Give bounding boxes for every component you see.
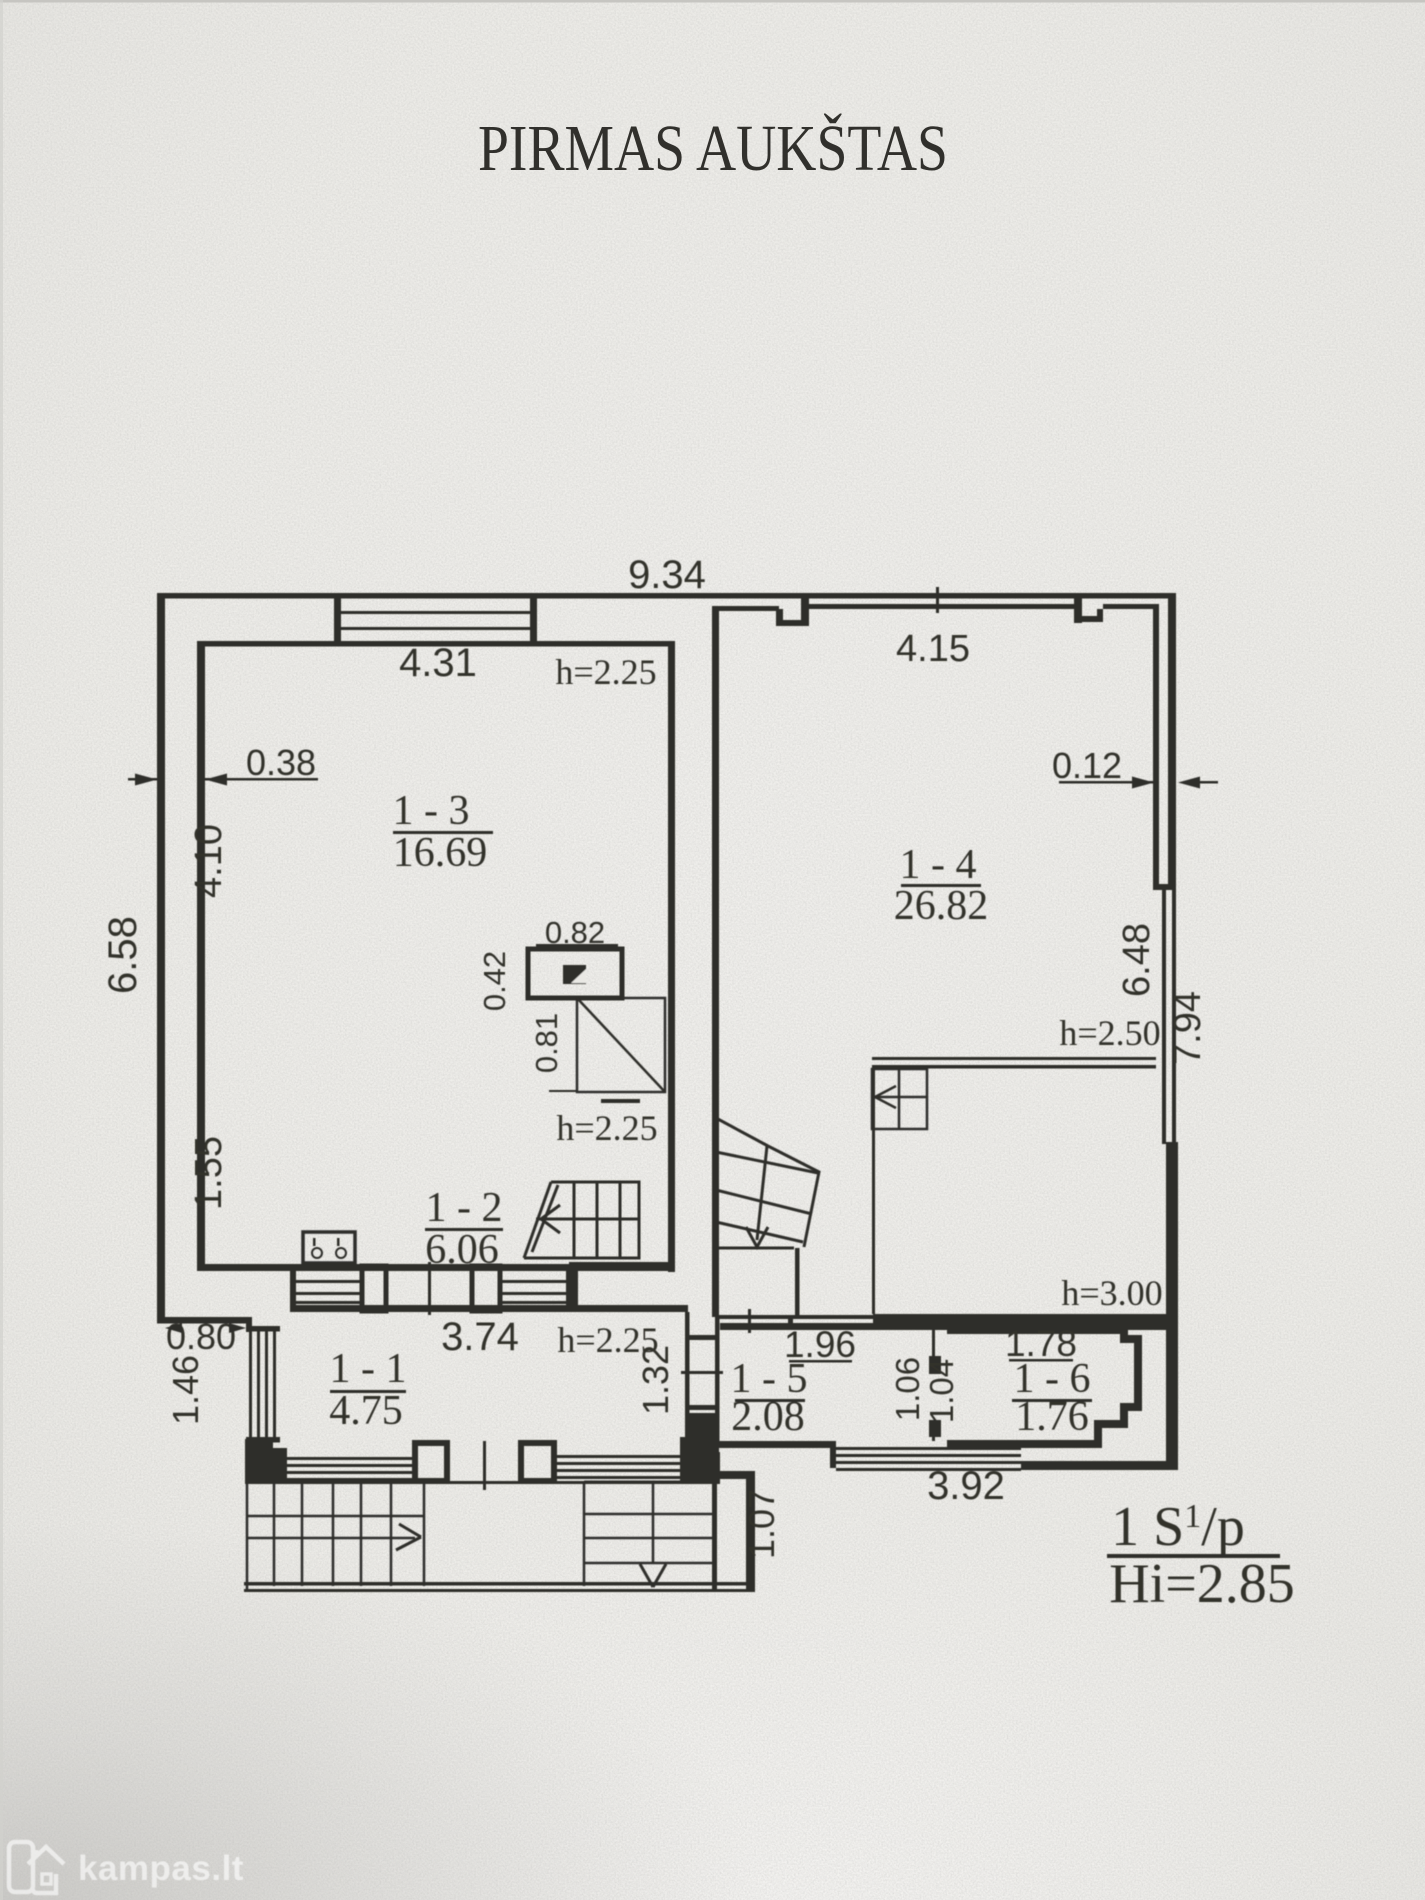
svg-text:h=2.50: h=2.50	[1059, 1013, 1160, 1053]
svg-text:0.80: 0.80	[166, 1316, 236, 1357]
svg-text:9.34: 9.34	[628, 553, 706, 597]
svg-text:Hi=2.85: Hi=2.85	[1109, 1553, 1295, 1615]
svg-text:4.75: 4.75	[329, 1388, 403, 1434]
svg-text:h=2.25: h=2.25	[556, 1108, 657, 1148]
svg-text:1 - 3: 1 - 3	[393, 788, 470, 834]
svg-text:1 S1/p: 1 S1/p	[1111, 1496, 1245, 1558]
svg-text:0.12: 0.12	[1052, 745, 1122, 786]
svg-text:16.69: 16.69	[393, 830, 488, 876]
svg-text:6.58: 6.58	[101, 916, 145, 994]
svg-text:1.76: 1.76	[1015, 1394, 1089, 1440]
svg-text:h=2.25: h=2.25	[555, 652, 656, 692]
svg-text:1 - 4: 1 - 4	[900, 842, 977, 888]
svg-text:26.82: 26.82	[894, 883, 989, 929]
svg-text:kampas.lt: kampas.lt	[78, 1849, 244, 1888]
svg-text:1.04: 1.04	[923, 1359, 960, 1423]
svg-text:4.15: 4.15	[896, 628, 970, 670]
svg-text:4.31: 4.31	[399, 641, 477, 685]
svg-text:1 - 1: 1 - 1	[330, 1346, 407, 1392]
svg-text:4.10: 4.10	[188, 824, 230, 898]
svg-text:PIRMAS AUKŠTAS: PIRMAS AUKŠTAS	[478, 112, 948, 185]
svg-text:6.48: 6.48	[1116, 923, 1158, 997]
svg-text:1.55: 1.55	[188, 1136, 230, 1210]
svg-text:1.46: 1.46	[165, 1355, 206, 1425]
svg-text:3.74: 3.74	[441, 1315, 519, 1359]
svg-text:7.94: 7.94	[1167, 991, 1209, 1065]
svg-text:0.42: 0.42	[477, 951, 512, 1011]
svg-text:0.38: 0.38	[246, 742, 316, 783]
svg-text:1 - 2: 1 - 2	[426, 1185, 503, 1231]
svg-text:h=3.00: h=3.00	[1061, 1273, 1162, 1313]
svg-text:1.06: 1.06	[889, 1357, 926, 1421]
svg-text:1.07: 1.07	[741, 1489, 782, 1559]
svg-text:3.92: 3.92	[927, 1464, 1005, 1508]
svg-text:1.32: 1.32	[635, 1345, 676, 1415]
svg-text:0.81: 0.81	[529, 1013, 564, 1073]
svg-text:2.08: 2.08	[731, 1394, 805, 1440]
